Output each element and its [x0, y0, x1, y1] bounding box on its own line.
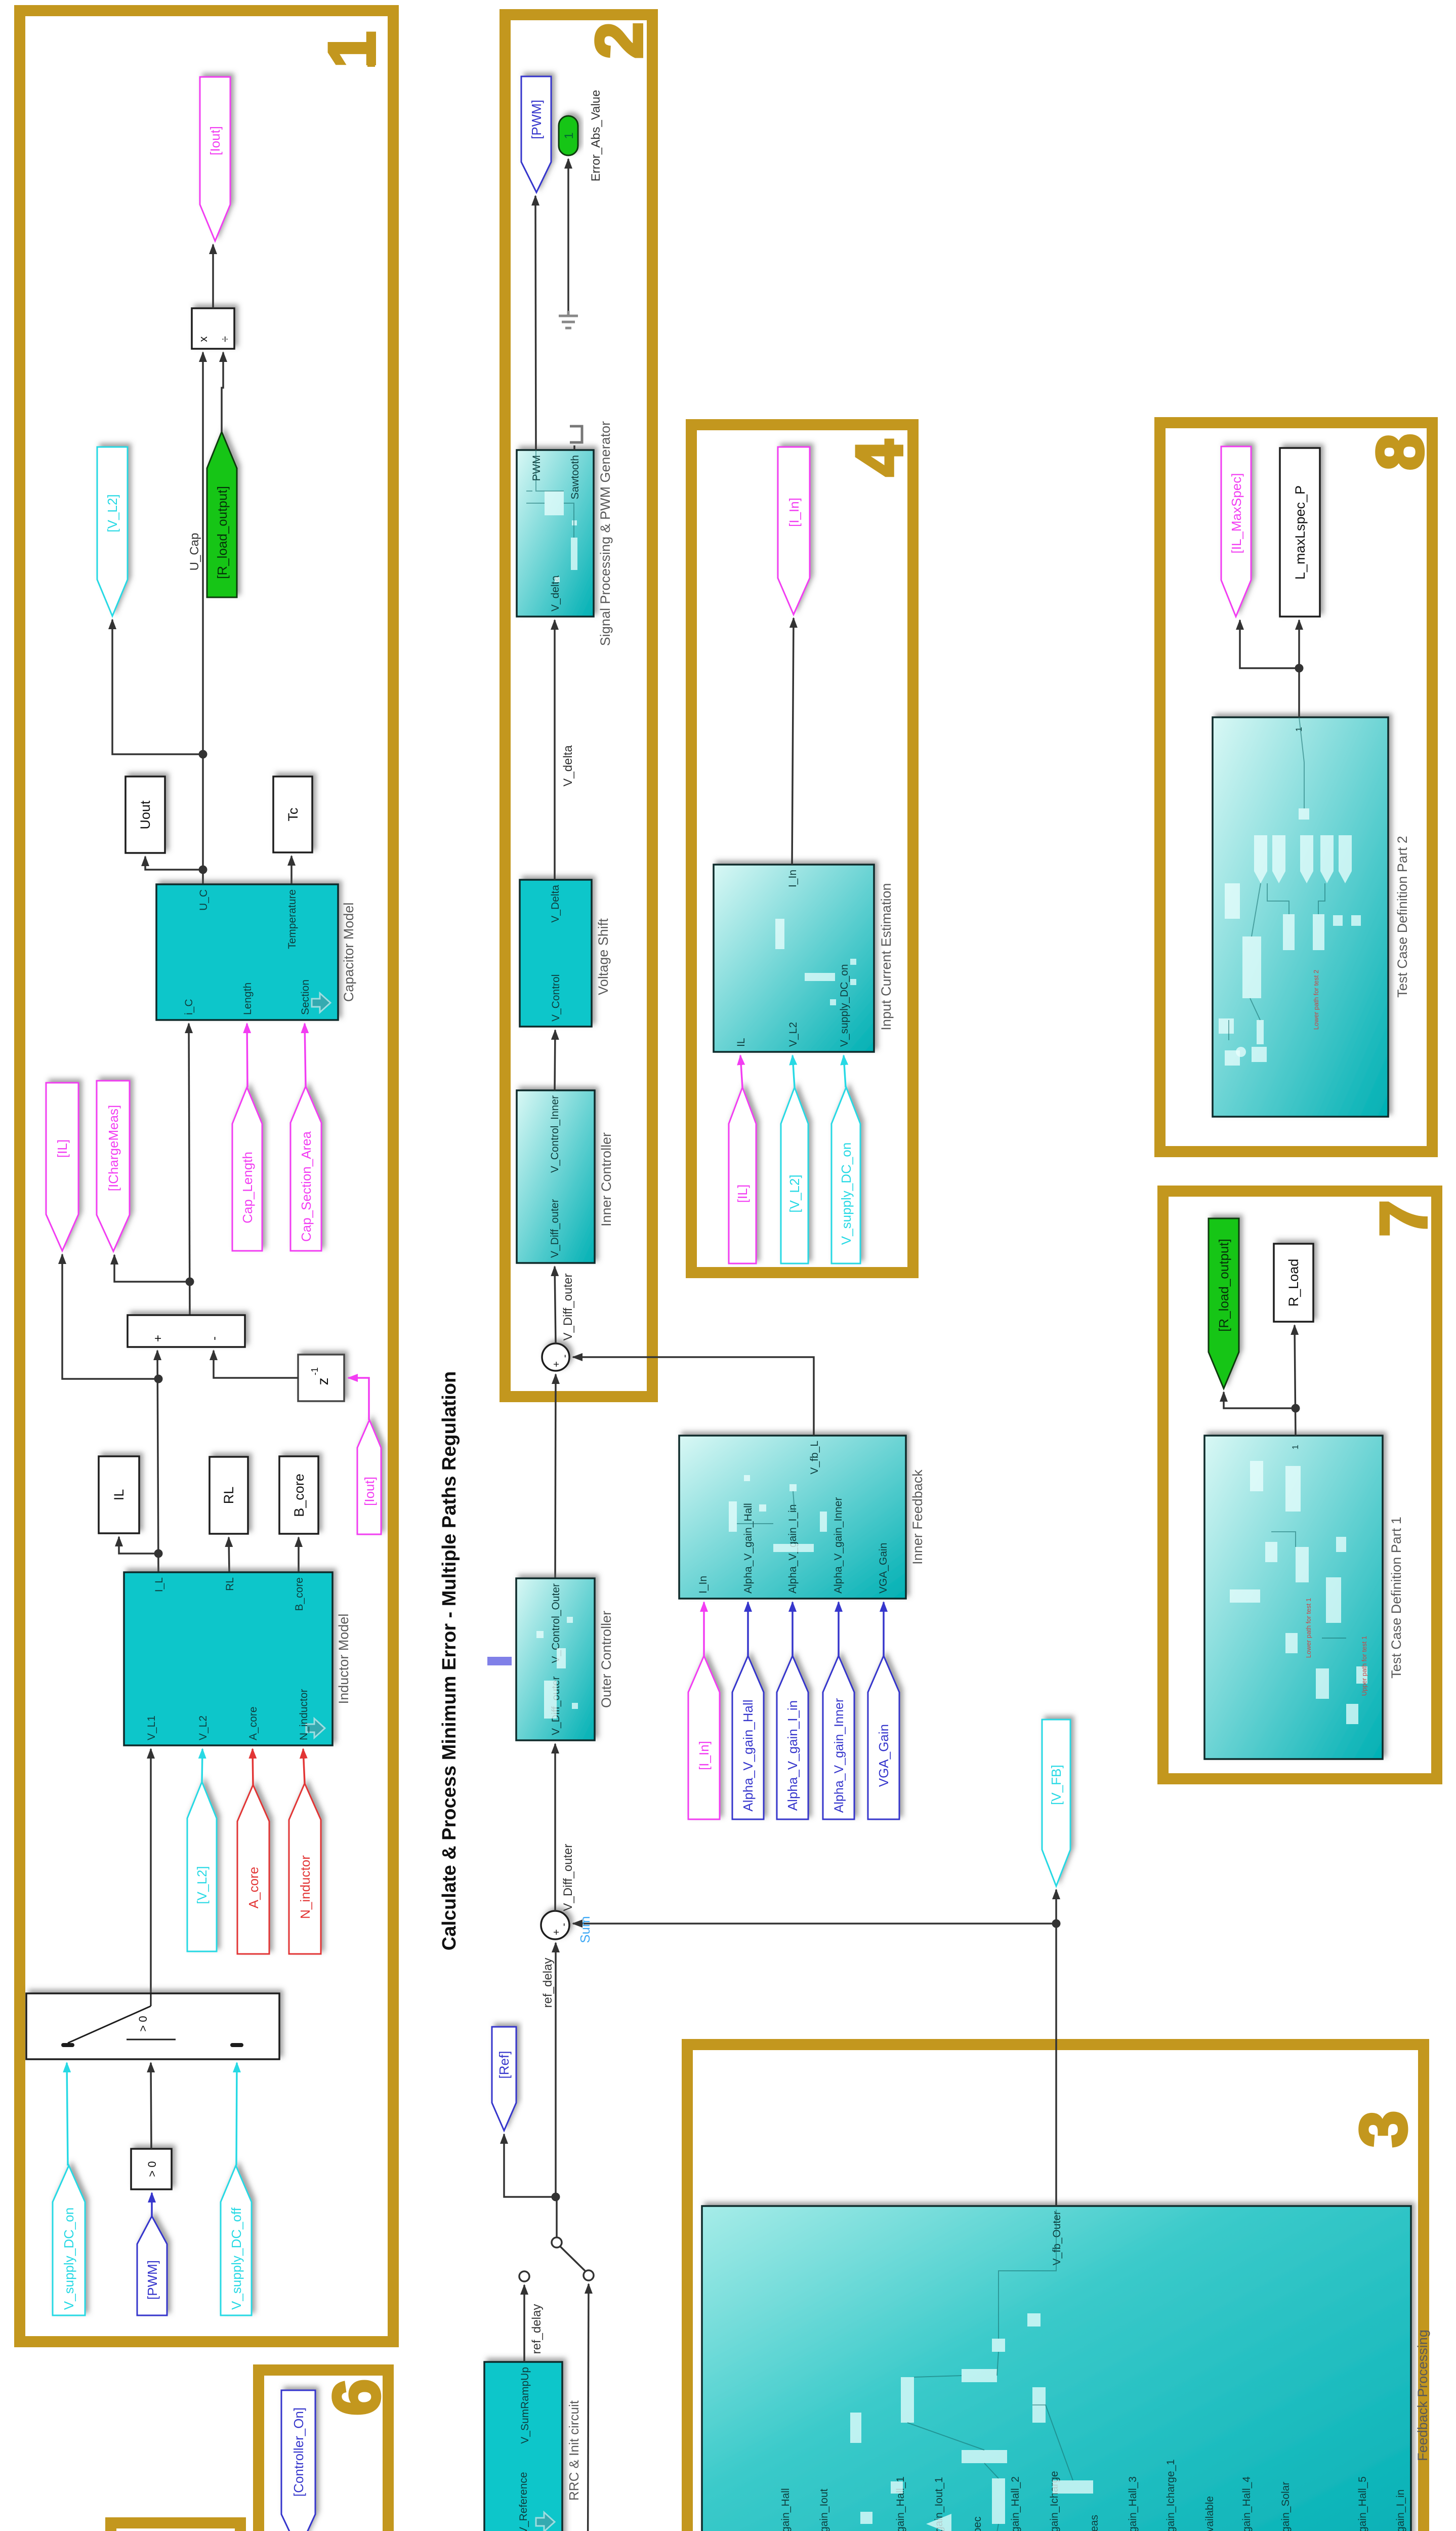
- svg-text:Alpha_V_gain_Iout: Alpha_V_gain_Iout: [818, 2488, 830, 2531]
- svg-text:[IChargeMeas]: [IChargeMeas]: [106, 1105, 121, 1192]
- svg-text:Outer Controller: Outer Controller: [599, 1611, 614, 1708]
- svg-text:x: x: [197, 337, 210, 342]
- svg-text:Alpha_V_gain_Hall: Alpha_V_gain_Hall: [780, 2488, 792, 2531]
- svg-text:ref_delay: ref_delay: [530, 2304, 544, 2354]
- svg-text:Alpha_V_gain_Icharge_1: Alpha_V_gain_Icharge_1: [1165, 2459, 1177, 2531]
- svg-text:Section: Section: [300, 979, 311, 1015]
- svg-text:V_Delta: V_Delta: [550, 885, 561, 923]
- svg-text:6: 6: [319, 2379, 393, 2416]
- svg-text:[IL]: [IL]: [55, 1139, 70, 1158]
- svg-text:1: 1: [1291, 1445, 1300, 1449]
- svg-text:Capacitor Model: Capacitor Model: [341, 903, 356, 1002]
- svg-text:Alpha_V_gain_Hall_2: Alpha_V_gain_Hall_2: [1010, 2476, 1021, 2531]
- svg-text:[PWM]: [PWM]: [145, 2260, 160, 2300]
- svg-text:Test Case Definition Part 1: Test Case Definition Part 1: [1389, 1517, 1404, 1679]
- svg-text:I_Solar_Available: I_Solar_Available: [1204, 2496, 1216, 2531]
- svg-text:Test Case Definition Part 2: Test Case Definition Part 2: [1395, 836, 1410, 998]
- svg-text:L_maxLspec_P: L_maxLspec_P: [1293, 485, 1308, 580]
- svg-text:IL: IL: [111, 1489, 127, 1501]
- svg-text:A_core: A_core: [246, 1867, 261, 1908]
- svg-text:[V_FB]: [V_FB]: [1049, 1765, 1064, 1805]
- svg-text:[V_L2]: [V_L2]: [787, 1174, 802, 1212]
- svg-text:N_inductor: N_inductor: [298, 1855, 313, 1919]
- svg-text:-1: -1: [310, 1367, 320, 1375]
- svg-text:Cap_Length: Cap_Length: [240, 1152, 255, 1223]
- svg-text:[I_In]: [I_In]: [696, 1741, 712, 1770]
- svg-text:Alpha_V_gain_I_in: Alpha_V_gain_I_in: [1395, 2489, 1406, 2531]
- svg-text:ref_delay: ref_delay: [541, 1958, 555, 2008]
- svg-text:1: 1: [315, 31, 389, 68]
- svg-text:I_In: I_In: [697, 1576, 709, 1594]
- svg-text:V_Control_Inner: V_Control_Inner: [549, 1095, 561, 1173]
- svg-text:+: +: [551, 1929, 562, 1935]
- svg-text:Alpha_V_gain_Inner: Alpha_V_gain_Inner: [832, 1698, 846, 1813]
- svg-text:V_supply_DC_on: V_supply_DC_on: [61, 2208, 76, 2310]
- svg-text:V_supply_DC_on: V_supply_DC_on: [839, 964, 850, 1047]
- svg-text:Inner Controller: Inner Controller: [599, 1132, 614, 1227]
- svg-text:Calculate & Process Minimum Er: Calculate & Process Minimum Error - Mult…: [439, 1371, 460, 1950]
- svg-text:Uout: Uout: [138, 800, 153, 830]
- svg-text:Signal Processing & PWM Genera: Signal Processing & PWM Generator: [598, 421, 613, 646]
- svg-text:Alpha_V_gain_Icharge: Alpha_V_gain_Icharge: [1049, 2471, 1060, 2531]
- svg-text:7: 7: [1366, 1200, 1440, 1237]
- svg-text:Lower path for test 2: Lower path for test 2: [1312, 970, 1320, 1030]
- svg-text:V_Diff_outer: V_Diff_outer: [549, 1199, 561, 1258]
- svg-text:V_supply_DC_off: V_supply_DC_off: [229, 2207, 244, 2310]
- svg-text:PWM: PWM: [531, 455, 543, 481]
- svg-text:8: 8: [1363, 434, 1437, 470]
- svg-text:RL: RL: [221, 1487, 236, 1504]
- svg-text:Input Current Estimation: Input Current Estimation: [879, 883, 894, 1030]
- svg-text:RRC & Init circuit: RRC & Init circuit: [566, 2400, 581, 2501]
- svg-text:A_core: A_core: [247, 1706, 259, 1740]
- svg-text:1: 1: [1294, 727, 1304, 731]
- svg-text:1: 1: [562, 132, 576, 139]
- svg-text:Inductor Model: Inductor Model: [336, 1614, 351, 1704]
- svg-text:4: 4: [842, 440, 916, 476]
- svg-text:[IL_MaxSpec]: [IL_MaxSpec]: [1229, 473, 1244, 554]
- svg-text:> 0: > 0: [137, 2016, 149, 2031]
- svg-text:V_L2: V_L2: [787, 1022, 799, 1047]
- svg-text:[Iout]: [Iout]: [362, 1477, 377, 1506]
- svg-text:Sawtooth: Sawtooth: [569, 455, 581, 500]
- svg-text:Error_Abs_Value: Error_Abs_Value: [589, 90, 603, 182]
- svg-text:[V_L2]: [V_L2]: [105, 494, 120, 532]
- svg-text:3: 3: [1346, 2111, 1420, 2147]
- svg-text:V_delta: V_delta: [561, 745, 575, 787]
- svg-text:V_fb_L: V_fb_L: [809, 1441, 820, 1475]
- svg-text:Feedback Processing: Feedback Processing: [1415, 2330, 1430, 2461]
- svg-text:Alpha_V_gain_Hall: Alpha_V_gain_Hall: [740, 1699, 756, 1811]
- svg-text:Alpha_V_gain_Hall_5: Alpha_V_gain_Hall_5: [1357, 2476, 1368, 2531]
- svg-text:V_supply_DC_on: V_supply_DC_on: [839, 1142, 854, 1245]
- svg-text:z: z: [315, 1378, 331, 1385]
- svg-text:[V_L2]: [V_L2]: [194, 1866, 210, 1904]
- svg-text:I_In: I_In: [787, 870, 799, 887]
- svg-text:[IL]: [IL]: [735, 1185, 750, 1203]
- svg-text:N_inductor: N_inductor: [298, 1689, 310, 1740]
- svg-text:2: 2: [582, 22, 656, 59]
- svg-text:IL: IL: [735, 1038, 747, 1047]
- svg-text:Alpha_V_gain_Hall_4: Alpha_V_gain_Hall_4: [1241, 2476, 1253, 2531]
- svg-text:-: -: [559, 1355, 570, 1358]
- svg-text:V_Control: V_Control: [550, 974, 562, 1022]
- svg-text:Tc: Tc: [285, 808, 301, 822]
- svg-text:[Iout]: [Iout]: [207, 126, 223, 155]
- svg-text:Inner Feedback: Inner Feedback: [910, 1469, 925, 1565]
- svg-text:Cap_Section_Area: Cap_Section_Area: [299, 1131, 314, 1242]
- svg-text:RL: RL: [224, 1577, 236, 1591]
- svg-text:Upper path for test 1: Upper path for test 1: [1360, 1636, 1368, 1696]
- svg-text:V_L1: V_L1: [146, 1716, 157, 1740]
- svg-text:+: +: [551, 1361, 562, 1367]
- svg-text:VGA_Gain: VGA_Gain: [876, 1724, 891, 1787]
- svg-text:Lower path for test 1: Lower path for test 1: [1305, 1598, 1312, 1658]
- svg-text:[Ref]: [Ref]: [496, 2051, 512, 2079]
- svg-text:[R_load_output]: [R_load_output]: [215, 486, 230, 579]
- svg-text:> 0: > 0: [146, 2161, 158, 2177]
- svg-text:V_SumRampUp: V_SumRampUp: [519, 2367, 531, 2444]
- svg-text:+: +: [151, 1335, 165, 1342]
- svg-text:[R_load_output]: [R_load_output]: [1216, 1239, 1231, 1332]
- svg-text:U_Cap: U_Cap: [188, 533, 201, 571]
- svg-text:-: -: [558, 1923, 569, 1927]
- svg-text:Alpha_V_gain_Inner: Alpha_V_gain_Inner: [833, 1497, 844, 1594]
- svg-text:V_Diff_outer: V_Diff_outer: [561, 1844, 575, 1911]
- svg-text:Alpha_V_gain_Hall_3: Alpha_V_gain_Hall_3: [1127, 2476, 1139, 2531]
- svg-text:IChargeMeas: IChargeMeas: [1089, 2515, 1100, 2531]
- svg-text:[PWM]: [PWM]: [529, 100, 544, 139]
- svg-text:Voltage Shift: Voltage Shift: [596, 918, 611, 995]
- svg-text:Alpha_V_gain_I_in: Alpha_V_gain_I_in: [785, 1700, 800, 1811]
- svg-text:IChargeSpec: IChargeSpec: [972, 2516, 983, 2531]
- svg-text:[Controller_On]: [Controller_On]: [291, 2407, 306, 2497]
- svg-text:[I_In]: [I_In]: [786, 498, 802, 527]
- svg-text:I_L: I_L: [153, 1577, 165, 1592]
- svg-text:Length: Length: [242, 983, 254, 1015]
- svg-text:R_Load: R_Load: [1286, 1259, 1301, 1307]
- svg-text:Sum: Sum: [577, 1916, 593, 1943]
- svg-text:U_C: U_C: [198, 889, 210, 911]
- svg-text:B_core: B_core: [292, 1474, 307, 1517]
- svg-text:V_fb_Outer: V_fb_Outer: [1051, 2211, 1063, 2265]
- svg-text:÷: ÷: [219, 336, 231, 342]
- svg-text:Alpha_V_gain_Hall: Alpha_V_gain_Hall: [742, 1503, 754, 1594]
- svg-text:i_C: i_C: [183, 999, 195, 1015]
- svg-text:B_core: B_core: [294, 1577, 305, 1611]
- svg-text:-: -: [207, 1336, 221, 1340]
- svg-text:V_Reference: V_Reference: [518, 2472, 529, 2531]
- svg-text:Temperature: Temperature: [286, 889, 298, 949]
- svg-text:Alpha_V_gain_Solar: Alpha_V_gain_Solar: [1280, 2482, 1292, 2531]
- svg-text:V_L2: V_L2: [197, 1716, 209, 1740]
- svg-text:V_Diff_outer: V_Diff_outer: [561, 1274, 575, 1341]
- svg-text:VGA_Gain: VGA_Gain: [878, 1543, 889, 1594]
